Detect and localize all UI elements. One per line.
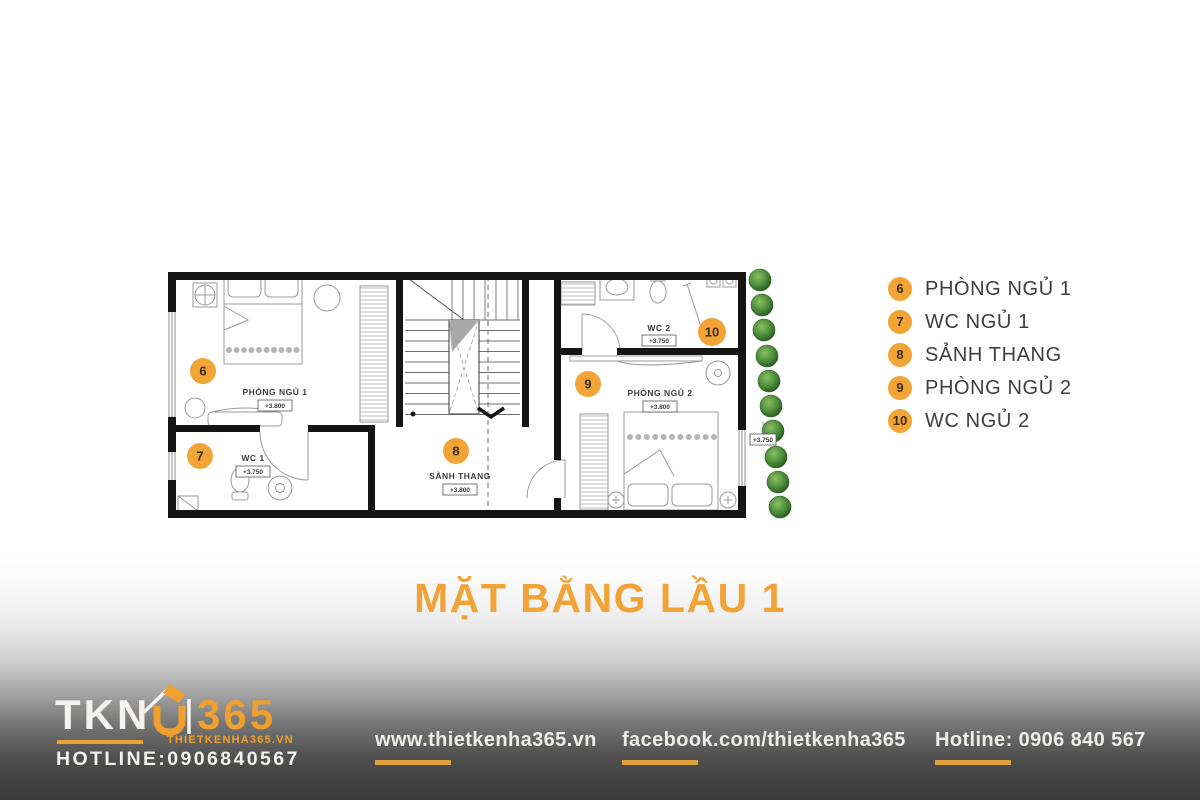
room-elevation: +3.750 [649, 338, 669, 345]
page-title: MẶT BẰNG LẦU 1 [0, 575, 1200, 622]
legend-badge: 7 [888, 310, 912, 334]
legend-label: WC NGỦ 2 [925, 410, 1030, 433]
logo-website: THIETKENHA365.VN [167, 734, 294, 746]
room-elevation: +3.800 [265, 403, 285, 410]
room-name: SẢNH THANG [429, 470, 491, 481]
side-elevation-tag: +3.750 [753, 437, 773, 444]
poster: 6 7 8 9 10 PHÒNG NGỦ 1 +3.800 WC 1 +3.75… [0, 0, 1200, 800]
room-elevation: +3.800 [650, 404, 670, 411]
footer-link-underline [375, 760, 451, 765]
legend-label: WC NGỦ 1 [925, 311, 1030, 334]
footer-hotline[interactable]: Hotline: 0906 840 567 [935, 729, 1146, 765]
floor-plan: 6 7 8 9 10 PHÒNG NGỦ 1 +3.800 WC 1 +3.75… [162, 262, 802, 522]
badge-number: 6 [199, 364, 206, 379]
footer-link-label: www.thietkenha365.vn [375, 729, 597, 752]
badge-number: 8 [452, 444, 459, 459]
footer-website-link[interactable]: www.thietkenha365.vn [375, 729, 597, 765]
room-name: WC 1 [241, 453, 264, 463]
legend-label: SẢNH THANG [925, 344, 1062, 367]
laundry-closet-icon [561, 282, 595, 305]
badge-number: 9 [584, 377, 591, 392]
legend-label: PHÒNG NGỦ 1 [925, 278, 1072, 301]
wardrobe-icon [580, 414, 608, 510]
footer-facebook-link[interactable]: facebook.com/thietkenha365 [622, 729, 906, 765]
brand-logo: TKN 365 THIETKENHA365.VN HOTLINE:0906840… [55, 684, 355, 789]
room-elevation: +3.750 [243, 469, 263, 476]
wardrobe-icon [360, 286, 388, 422]
footer-link-underline [935, 760, 1011, 765]
room-elevation: +3.800 [450, 487, 470, 494]
legend-item: 10 WC NGỦ 2 [888, 409, 1072, 433]
legend-item: 8 SẢNH THANG [888, 343, 1072, 367]
brand-logo-text-right: 365 [197, 694, 276, 736]
legend-item: 7 WC NGỦ 1 [888, 310, 1072, 334]
legend-badge: 8 [888, 343, 912, 367]
brand-logo-text-left: TKN [55, 694, 150, 736]
badge-number: 10 [705, 325, 719, 340]
legend-item: 6 PHÒNG NGỦ 1 [888, 277, 1072, 301]
room-name: PHÒNG NGỦ 1 [242, 386, 307, 397]
footer-link-label: Hotline: 0906 840 567 [935, 729, 1146, 752]
badge-number: 7 [196, 449, 203, 464]
legend-badge: 9 [888, 376, 912, 400]
footer-link-label: facebook.com/thietkenha365 [622, 729, 906, 752]
legend-badge: 10 [888, 409, 912, 433]
footer-link-underline [622, 760, 698, 765]
logo-underline-bar [57, 740, 143, 744]
legend-badge: 6 [888, 277, 912, 301]
room-name: WC 2 [647, 323, 670, 333]
room-name: PHÒNG NGỦ 2 [627, 387, 692, 398]
legend-item: 9 PHÒNG NGỦ 2 [888, 376, 1072, 400]
legend: 6 PHÒNG NGỦ 1 7 WC NGỦ 1 8 SẢNH THANG 9 … [888, 277, 1072, 433]
logo-hotline: HOTLINE:0906840567 [56, 748, 300, 771]
legend-label: PHÒNG NGỦ 2 [925, 377, 1072, 400]
